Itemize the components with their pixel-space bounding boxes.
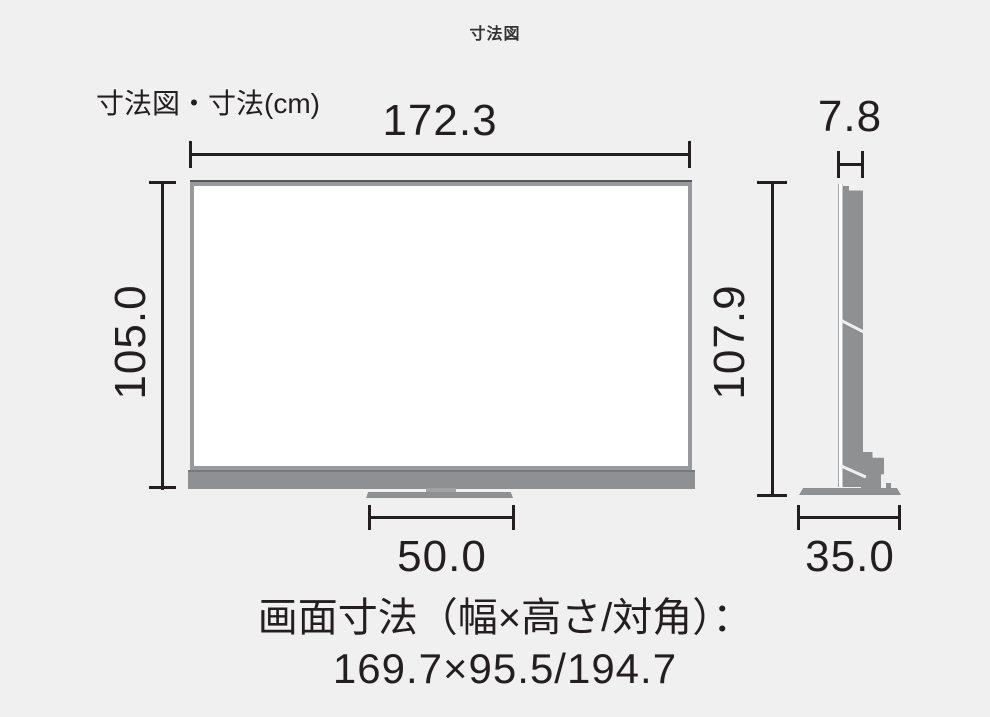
side-depth-tick-left: [837, 151, 840, 178]
stand-width-dimension-line: [369, 516, 514, 519]
total-height-tick-bottom: [757, 494, 787, 497]
stand-depth-dimension-line: [798, 516, 901, 519]
front-width-tick-left: [189, 141, 192, 168]
tv-side-foot: [886, 483, 891, 488]
screen-size-label: 画面寸法（幅×高さ/対角）：: [10, 585, 990, 643]
panel-height-tick-top: [149, 181, 176, 184]
stand-depth-value: 35.0: [750, 532, 950, 582]
stand-width-tick-right: [512, 505, 515, 530]
front-width-dimension-line: [190, 153, 690, 156]
panel-height-tick-bottom: [149, 486, 176, 489]
panel-height-dimension-line: [161, 182, 164, 490]
screen-size-value: 169.7×95.5/194.7: [10, 645, 990, 693]
total-height-dimension-line: [771, 182, 774, 497]
tv-side-electronics-box: [861, 452, 884, 488]
dimension-diagram: 寸法図 寸法図・寸法(cm) 172.3 105.0 107.9 50.0 7.…: [0, 0, 990, 717]
tv-front-screen: [190, 182, 692, 470]
stand-depth-tick-left: [797, 505, 800, 530]
stand-width-value: 50.0: [342, 532, 542, 582]
side-depth-dimension-line: [839, 163, 863, 166]
total-height-value: 107.9: [705, 242, 753, 442]
side-depth-value: 7.8: [800, 92, 900, 142]
side-depth-tick-right: [861, 151, 864, 178]
tv-side-panel-body: [843, 186, 863, 487]
tv-front-stand-base: [366, 492, 513, 498]
total-height-tick-top: [757, 181, 787, 184]
front-width-value: 172.3: [190, 96, 690, 146]
page-title: 寸法図: [0, 20, 990, 44]
tv-front-speaker-bar: [188, 470, 695, 489]
stand-depth-tick-right: [898, 505, 901, 530]
stand-width-tick-left: [368, 505, 371, 530]
tv-side-screen-edge: [838, 184, 843, 487]
tv-side-stand-base: [799, 488, 901, 495]
panel-height-value: 105.0: [106, 242, 154, 442]
front-width-tick-right: [688, 141, 691, 168]
